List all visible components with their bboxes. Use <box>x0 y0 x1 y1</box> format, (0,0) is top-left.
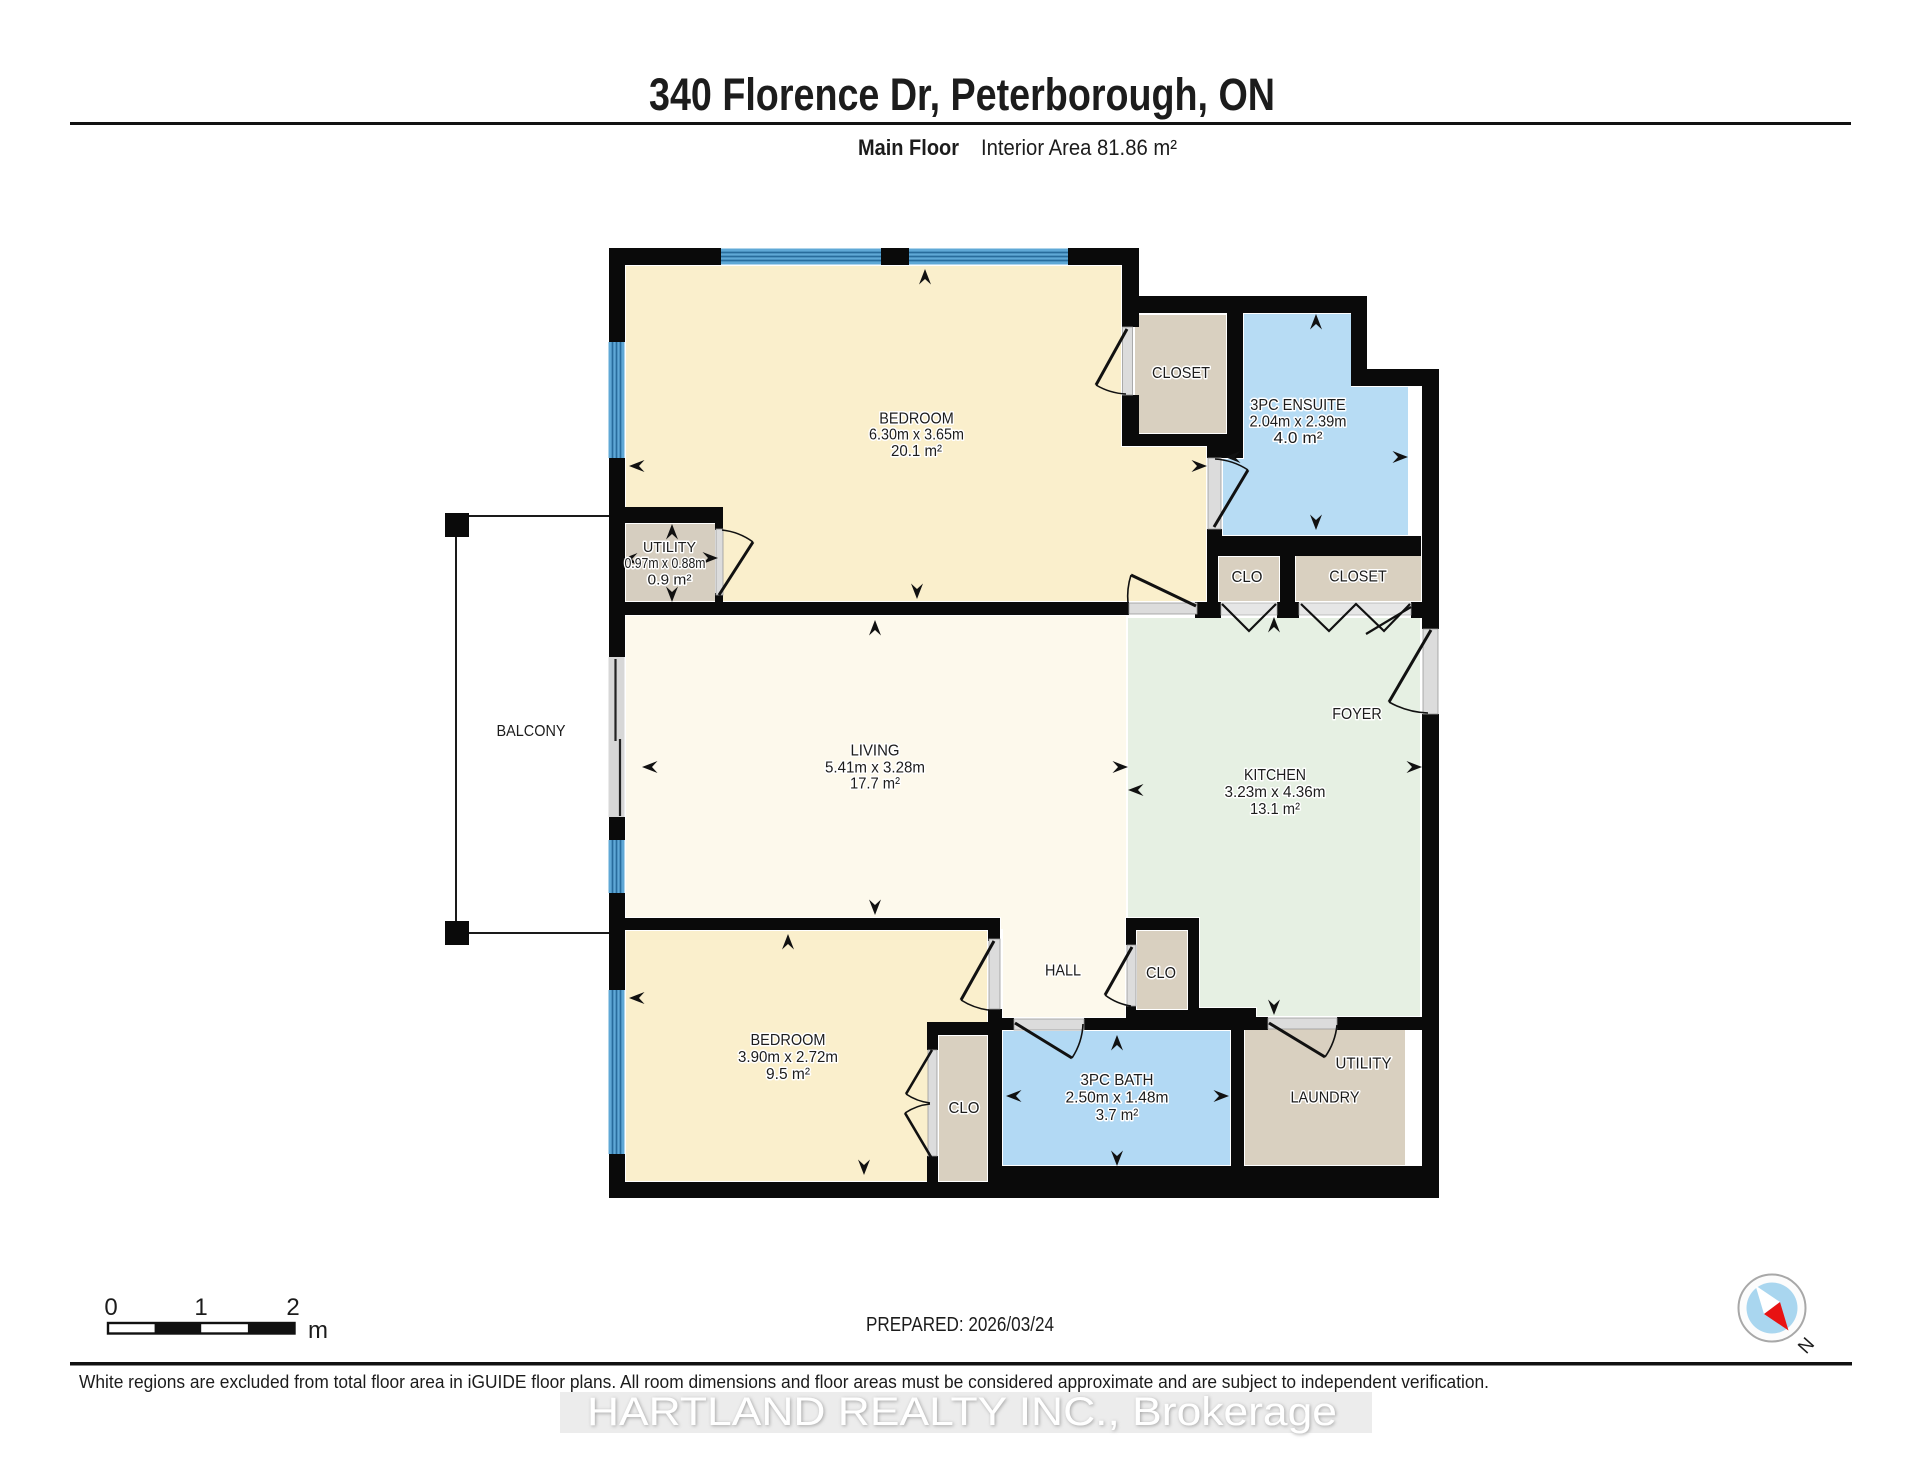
svg-text:CLOSET: CLOSET <box>1329 569 1387 586</box>
svg-text:CLO: CLO <box>1232 569 1263 586</box>
svg-text:3PC BATH: 3PC BATH <box>1081 1072 1154 1089</box>
svg-text:0: 0 <box>104 1294 117 1321</box>
svg-text:Main Floor: Main Floor <box>858 135 959 160</box>
svg-text:3.23m x 4.36m: 3.23m x 4.36m <box>1225 784 1326 801</box>
svg-text:2.50m x 1.48m: 2.50m x 1.48m <box>1066 1090 1169 1107</box>
svg-text:UTILITY: UTILITY <box>1336 1056 1392 1073</box>
svg-text:4.0 m²: 4.0 m² <box>1274 430 1324 447</box>
svg-text:3.7 m²: 3.7 m² <box>1096 1107 1139 1124</box>
svg-text:LAUNDRY: LAUNDRY <box>1291 1090 1360 1107</box>
svg-text:HARTLAND REALTY INC., Brokerag: HARTLAND REALTY INC., Brokerage <box>587 1390 1337 1434</box>
svg-text:BEDROOM: BEDROOM <box>879 411 954 428</box>
svg-text:LIVING: LIVING <box>851 743 900 760</box>
svg-text:13.1 m²: 13.1 m² <box>1250 801 1301 818</box>
svg-text:White regions are excluded fro: White regions are excluded from total fl… <box>79 1372 1489 1392</box>
svg-text:1: 1 <box>194 1294 207 1321</box>
svg-text:CLO: CLO <box>949 1100 980 1117</box>
svg-text:UTILITY: UTILITY <box>643 540 696 556</box>
svg-text:340 Florence Dr, Peterborough,: 340 Florence Dr, Peterborough, ON <box>649 69 1275 120</box>
svg-text:Interior Area 81.86 m²: Interior Area 81.86 m² <box>981 135 1177 160</box>
svg-text:2: 2 <box>286 1294 299 1321</box>
svg-text:0.9 m²: 0.9 m² <box>648 573 692 589</box>
svg-text:2.04m x 2.39m: 2.04m x 2.39m <box>1250 414 1347 431</box>
svg-text:BALCONY: BALCONY <box>497 723 566 740</box>
svg-text:0.97m x 0.88m: 0.97m x 0.88m <box>625 556 706 572</box>
svg-text:20.1 m²: 20.1 m² <box>891 443 943 460</box>
svg-text:9.5 m²: 9.5 m² <box>766 1066 811 1083</box>
svg-text:6.30m x 3.65m: 6.30m x 3.65m <box>869 427 964 444</box>
svg-text:5.41m x 3.28m: 5.41m x 3.28m <box>825 760 925 777</box>
svg-text:17.7 m²: 17.7 m² <box>850 776 901 793</box>
svg-text:KITCHEN: KITCHEN <box>1244 767 1306 784</box>
svg-text:3PC ENSUITE: 3PC ENSUITE <box>1250 397 1346 414</box>
svg-text:PREPARED: 2026/03/24: PREPARED: 2026/03/24 <box>866 1314 1054 1336</box>
svg-text:HALL: HALL <box>1045 963 1081 980</box>
svg-text:m: m <box>308 1317 328 1344</box>
svg-text:CLO: CLO <box>1146 965 1176 982</box>
svg-text:CLOSET: CLOSET <box>1152 365 1210 382</box>
svg-text:BEDROOM: BEDROOM <box>751 1032 826 1049</box>
svg-text:3.90m x 2.72m: 3.90m x 2.72m <box>738 1049 838 1066</box>
svg-text:FOYER: FOYER <box>1332 706 1382 723</box>
